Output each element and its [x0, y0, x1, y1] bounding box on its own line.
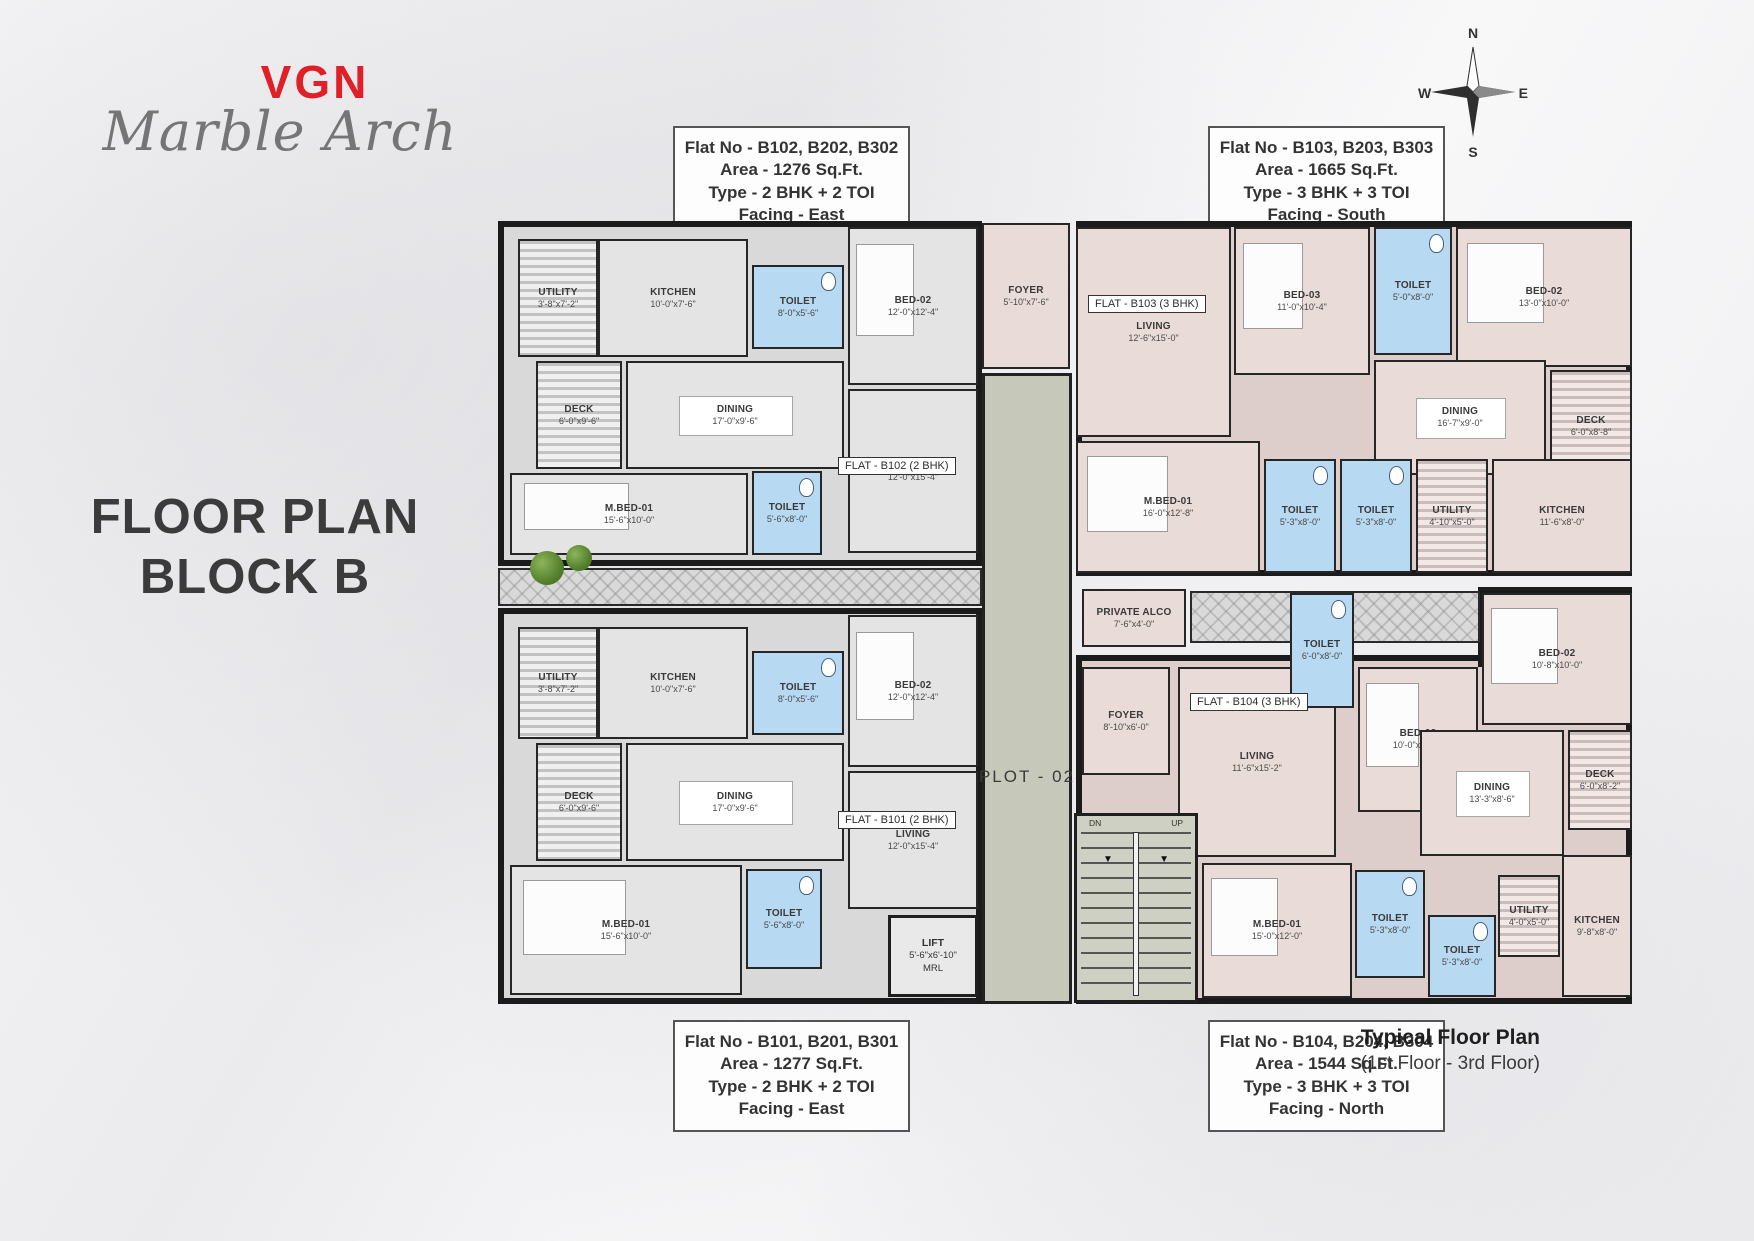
room-bed-02-b104: BED-0210'-8"x10'-0" — [1482, 593, 1632, 725]
flat-no: Flat No - B101, B201, B301 — [679, 1031, 904, 1053]
room-living-b101: LIVING12'-0"x15'-4" — [848, 771, 978, 909]
flat-tag-b103: FLAT - B103 (3 BHK) — [1088, 295, 1206, 313]
flat-tag-b101: FLAT - B101 (2 BHK) — [838, 811, 956, 829]
room-dimensions: 5'-3"x8'-0" — [1356, 517, 1396, 529]
room-name: BED-02 — [895, 294, 932, 307]
room-name: FOYER — [1108, 709, 1143, 722]
room-name: TOILET — [769, 501, 806, 514]
room-name: BED-02 — [895, 679, 932, 692]
room-dimensions: 6'-0"x8'-0" — [1302, 651, 1342, 663]
tree-icon — [566, 545, 592, 571]
room-name: BED-03 — [1284, 289, 1321, 302]
room-toilet-b104: TOILET5'-3"x8'-0" — [1355, 870, 1425, 978]
room-dimensions: 5'-6"x8'-0" — [767, 514, 807, 526]
flat-facing: Facing - North — [1214, 1098, 1439, 1120]
room-m-bed-01-b102: M.BED-0115'-6"x10'-0" — [510, 473, 748, 555]
room-toilet-b102: TOILET5'-6"x8'-0" — [752, 471, 822, 555]
flat-no: Flat No - B103, B203, B303 — [1214, 137, 1439, 159]
room-name: M.BED-01 — [1144, 495, 1192, 508]
room-dimensions: 16'-7"x9'-0" — [1437, 418, 1482, 430]
room-dimensions: 9'-8"x8'-0" — [1577, 927, 1617, 939]
room-dimensions: 13'-3"x8'-6" — [1469, 794, 1514, 806]
room-dimensions: 6'-0"x8'-8" — [1571, 427, 1611, 439]
compass-rose: N W E S — [1418, 25, 1528, 160]
room-name: LIVING — [1240, 750, 1275, 763]
room-name: KITCHEN — [1539, 504, 1585, 517]
plot-label: PLOT - 02 — [979, 767, 1075, 787]
stairs-up-arrow-icon: ▼ — [1159, 854, 1169, 865]
flat-no: Flat No - B102, B202, B302 — [679, 137, 904, 159]
room-toilet-b102: TOILET8'-0"x5'-6" — [752, 265, 844, 349]
info-box-b101: Flat No - B101, B201, B301 Area - 1277 S… — [673, 1020, 910, 1132]
flat-type: Type - 3 BHK + 3 TOI — [1214, 182, 1439, 204]
flat-type: Type - 2 BHK + 2 TOI — [679, 182, 904, 204]
room-name: TOILET — [1372, 912, 1409, 925]
room-toilet-b104: TOILET5'-3"x8'-0" — [1428, 915, 1496, 997]
room-name: PRIVATE ALCO — [1097, 606, 1172, 619]
room-dimensions: 13'-0"x10'-0" — [1519, 298, 1569, 310]
room-dimensions: 12'-6"x15'-0" — [1128, 333, 1178, 345]
room-name: KITCHEN — [650, 671, 696, 684]
room-dimensions: 4'-10"x5'-0" — [1429, 517, 1474, 529]
room-dimensions: 12'-0"x15'-4" — [888, 841, 938, 853]
room-name: UTILITY — [538, 286, 577, 299]
room-name: TOILET — [1358, 504, 1395, 517]
room-dimensions: 10'-0"x7'-6" — [650, 299, 695, 311]
room-toilet-b103: TOILET5'-0"x8'-0" — [1374, 227, 1452, 355]
room-bed-03-b103: BED-0311'-0"x10'-4" — [1234, 227, 1370, 375]
room-dimensions: 8'-0"x5'-6" — [778, 308, 818, 320]
room-bed-02-b102: BED-0212'-0"x12'-4" — [848, 227, 978, 385]
flat-area: Area - 1277 Sq.Ft. — [679, 1053, 904, 1075]
flat-tag-b102: FLAT - B102 (2 BHK) — [838, 457, 956, 475]
room-utility-b103: UTILITY4'-10"x5'-0" — [1416, 459, 1488, 573]
tree-icon — [530, 551, 564, 585]
room-name: DECK — [564, 790, 593, 803]
stairs-down-arrow-icon: ▼ — [1103, 854, 1113, 865]
room-bed-02-b103: BED-0213'-0"x10'-0" — [1456, 227, 1632, 367]
room-name: DINING — [1442, 405, 1478, 418]
room-name: TOILET — [1282, 504, 1319, 517]
page-title-line2: BLOCK B — [140, 550, 370, 604]
room-dimensions: 15'-0"x12'-0" — [1252, 931, 1302, 943]
lift-note: MRL — [923, 963, 943, 976]
room-dimensions: 3'-8"x7'-2" — [538, 299, 578, 311]
room-name: M.BED-01 — [605, 502, 653, 515]
room-name: TOILET — [1444, 944, 1481, 957]
room-name: LIVING — [1136, 320, 1171, 333]
room-private-alco-b103: PRIVATE ALCO7'-6"x4'-0" — [1082, 589, 1186, 647]
room-dimensions: 6'-0"x8'-2" — [1580, 781, 1620, 793]
room-bed-02-b101: BED-0212'-0"x12'-4" — [848, 615, 978, 767]
compass-east-label: E — [1519, 85, 1528, 101]
room-name: KITCHEN — [1574, 914, 1620, 927]
room-foyer-b104: FOYER8'-10"x6'-0" — [1082, 667, 1170, 775]
room-dimensions: 17'-0"x9'-6" — [712, 803, 757, 815]
room-name: M.BED-01 — [602, 918, 650, 931]
room-toilet-b103: TOILET5'-3"x8'-0" — [1264, 459, 1336, 573]
room-name: TOILET — [780, 681, 817, 694]
room-dimensions: 6'-0"x9'-6" — [559, 803, 599, 815]
room-dining-b104: DINING13'-3"x8'-6" — [1420, 730, 1564, 856]
flat-tag-b104: FLAT - B104 (3 BHK) — [1190, 693, 1308, 711]
room-m-bed-01-b101: M.BED-0115'-6"x10'-0" — [510, 865, 742, 995]
flat-facing: Facing - East — [679, 1098, 904, 1120]
page-title-line1: FLOOR PLAN — [91, 490, 419, 544]
footer-subtitle: (1st Floor - 3rd Floor) — [1260, 1053, 1540, 1075]
room-living-b103: LIVING12'-6"x15'-0" — [1076, 227, 1231, 437]
room-name: FOYER — [1008, 284, 1043, 297]
room-name: UTILITY — [1432, 504, 1471, 517]
lift-label: LIFT — [922, 936, 944, 950]
room-dimensions: 5'-6"x8'-0" — [764, 920, 804, 932]
room-name: LIVING — [896, 828, 931, 841]
floor-plan-page: { "brand": {"logo": "VGN", "name": "Marb… — [0, 0, 1754, 1241]
room-deck-b102: DECK6'-0"x9'-6" — [536, 361, 622, 469]
room-utility-b102: UTILITY3'-8"x7'-2" — [518, 239, 598, 357]
room-name: TOILET — [1395, 279, 1432, 292]
room-name: KITCHEN — [650, 286, 696, 299]
room-dimensions: 7'-6"x4'-0" — [1114, 619, 1154, 631]
lift-dims: 5'-6"x6'-10" — [909, 950, 957, 963]
room-dimensions: 3'-8"x7'-2" — [538, 684, 578, 696]
stairs-up-label: UP — [1171, 818, 1183, 828]
room-dining-b103: DINING16'-7"x9'-0" — [1374, 360, 1546, 475]
room-toilet-b104: TOILET6'-0"x8'-0" — [1290, 593, 1354, 708]
room-dimensions: 8'-0"x5'-6" — [778, 694, 818, 706]
room-name: DINING — [717, 790, 753, 803]
room-dimensions: 8'-10"x6'-0" — [1103, 722, 1148, 734]
room-kitchen-b104: KITCHEN9'-8"x8'-0" — [1562, 855, 1632, 997]
room-dimensions: 12'-0"x12'-4" — [888, 307, 938, 319]
room-kitchen-b101: KITCHEN10'-0"x7'-6" — [598, 627, 748, 739]
page-title: FLOOR PLAN BLOCK B — [55, 488, 455, 608]
room-toilet-b103: TOILET5'-3"x8'-0" — [1340, 459, 1412, 573]
room-utility-b104: UTILITY4'-0"x5'-0" — [1498, 875, 1560, 957]
room-dimensions: 11'-6"x15'-2" — [1232, 763, 1282, 775]
room-kitchen-b103: KITCHEN11'-6"x8'-0" — [1492, 459, 1632, 573]
compass-star-icon — [1418, 25, 1528, 160]
room-name: BED-02 — [1526, 285, 1563, 298]
room-name: TOILET — [1304, 638, 1341, 651]
room-dimensions: 5'-3"x8'-0" — [1442, 957, 1482, 969]
flat-type: Type - 2 BHK + 2 TOI — [679, 1076, 904, 1098]
room-toilet-b101: TOILET8'-0"x5'-6" — [752, 651, 844, 735]
footer-title: Typical Floor Plan — [1260, 1026, 1540, 1050]
central-corridor — [982, 373, 1072, 1004]
room-name: DECK — [564, 403, 593, 416]
room-name: DINING — [717, 403, 753, 416]
room-dimensions: 5'-3"x8'-0" — [1280, 517, 1320, 529]
room-name: M.BED-01 — [1253, 918, 1301, 931]
room-name: DECK — [1585, 768, 1614, 781]
room-deck-b104: DECK6'-0"x8'-2" — [1568, 730, 1632, 830]
room-foyer-b103: FOYER5'-10"x7'-6" — [982, 223, 1070, 369]
room-name: DINING — [1474, 781, 1510, 794]
room-dimensions: 15'-6"x10'-0" — [601, 931, 651, 943]
room-name: UTILITY — [538, 671, 577, 684]
room-dimensions: 12'-0"x12'-4" — [888, 692, 938, 704]
room-dimensions: 5'-0"x8'-0" — [1393, 292, 1433, 304]
room-name: TOILET — [766, 907, 803, 920]
room-dimensions: 15'-6"x10'-0" — [604, 515, 654, 527]
compass-north-label: N — [1468, 25, 1478, 41]
room-name: TOILET — [780, 295, 817, 308]
brand-name: Marble Arch — [60, 100, 500, 163]
room-dimensions: 16'-0"x12'-8" — [1143, 508, 1193, 520]
room-dimensions: 5'-10"x7'-6" — [1003, 297, 1048, 309]
lift: LIFT 5'-6"x6'-10" MRL — [888, 915, 978, 997]
stairs-down-label: DN — [1089, 818, 1101, 828]
room-dimensions: 6'-0"x9'-6" — [559, 416, 599, 428]
room-name: DECK — [1576, 414, 1605, 427]
flat-area: Area - 1665 Sq.Ft. — [1214, 159, 1439, 181]
room-name: BED-02 — [1539, 647, 1576, 660]
room-toilet-b101: TOILET5'-6"x8'-0" — [746, 869, 822, 969]
stair-rail — [1133, 832, 1139, 996]
floor-plan: PLOT - 02 DN UP ▼ ▼ LIFT 5'-6"x6'-10" MR… — [490, 215, 1640, 1007]
room-dimensions: 4'-0"x5'-0" — [1509, 917, 1549, 929]
room-utility-b101: UTILITY3'-8"x7'-2" — [518, 627, 598, 739]
room-dining-b102: DINING17'-0"x9'-6" — [626, 361, 844, 469]
room-dimensions: 10'-0"x7'-6" — [650, 684, 695, 696]
room-dimensions: 17'-0"x9'-6" — [712, 416, 757, 428]
room-name: UTILITY — [1509, 904, 1548, 917]
room-dimensions: 5'-3"x8'-0" — [1370, 925, 1410, 937]
room-dimensions: 10'-8"x10'-0" — [1532, 660, 1582, 672]
flat-type: Type - 3 BHK + 3 TOI — [1214, 1076, 1439, 1098]
room-dimensions: 11'-0"x10'-4" — [1277, 302, 1327, 314]
room-kitchen-b102: KITCHEN10'-0"x7'-6" — [598, 239, 748, 357]
compass-west-label: W — [1418, 85, 1431, 101]
flat-area: Area - 1276 Sq.Ft. — [679, 159, 904, 181]
stone-pathway-left — [498, 568, 982, 606]
compass-south-label: S — [1468, 144, 1477, 160]
room-deck-b101: DECK6'-0"x9'-6" — [536, 743, 622, 861]
room-m-bed-01-b104: M.BED-0115'-0"x12'-0" — [1202, 863, 1352, 998]
room-m-bed-01-b103: M.BED-0116'-0"x12'-8" — [1076, 441, 1260, 573]
room-dining-b101: DINING17'-0"x9'-6" — [626, 743, 844, 861]
staircase: DN UP ▼ ▼ — [1074, 813, 1198, 1003]
room-dimensions: 11'-6"x8'-0" — [1540, 517, 1585, 529]
